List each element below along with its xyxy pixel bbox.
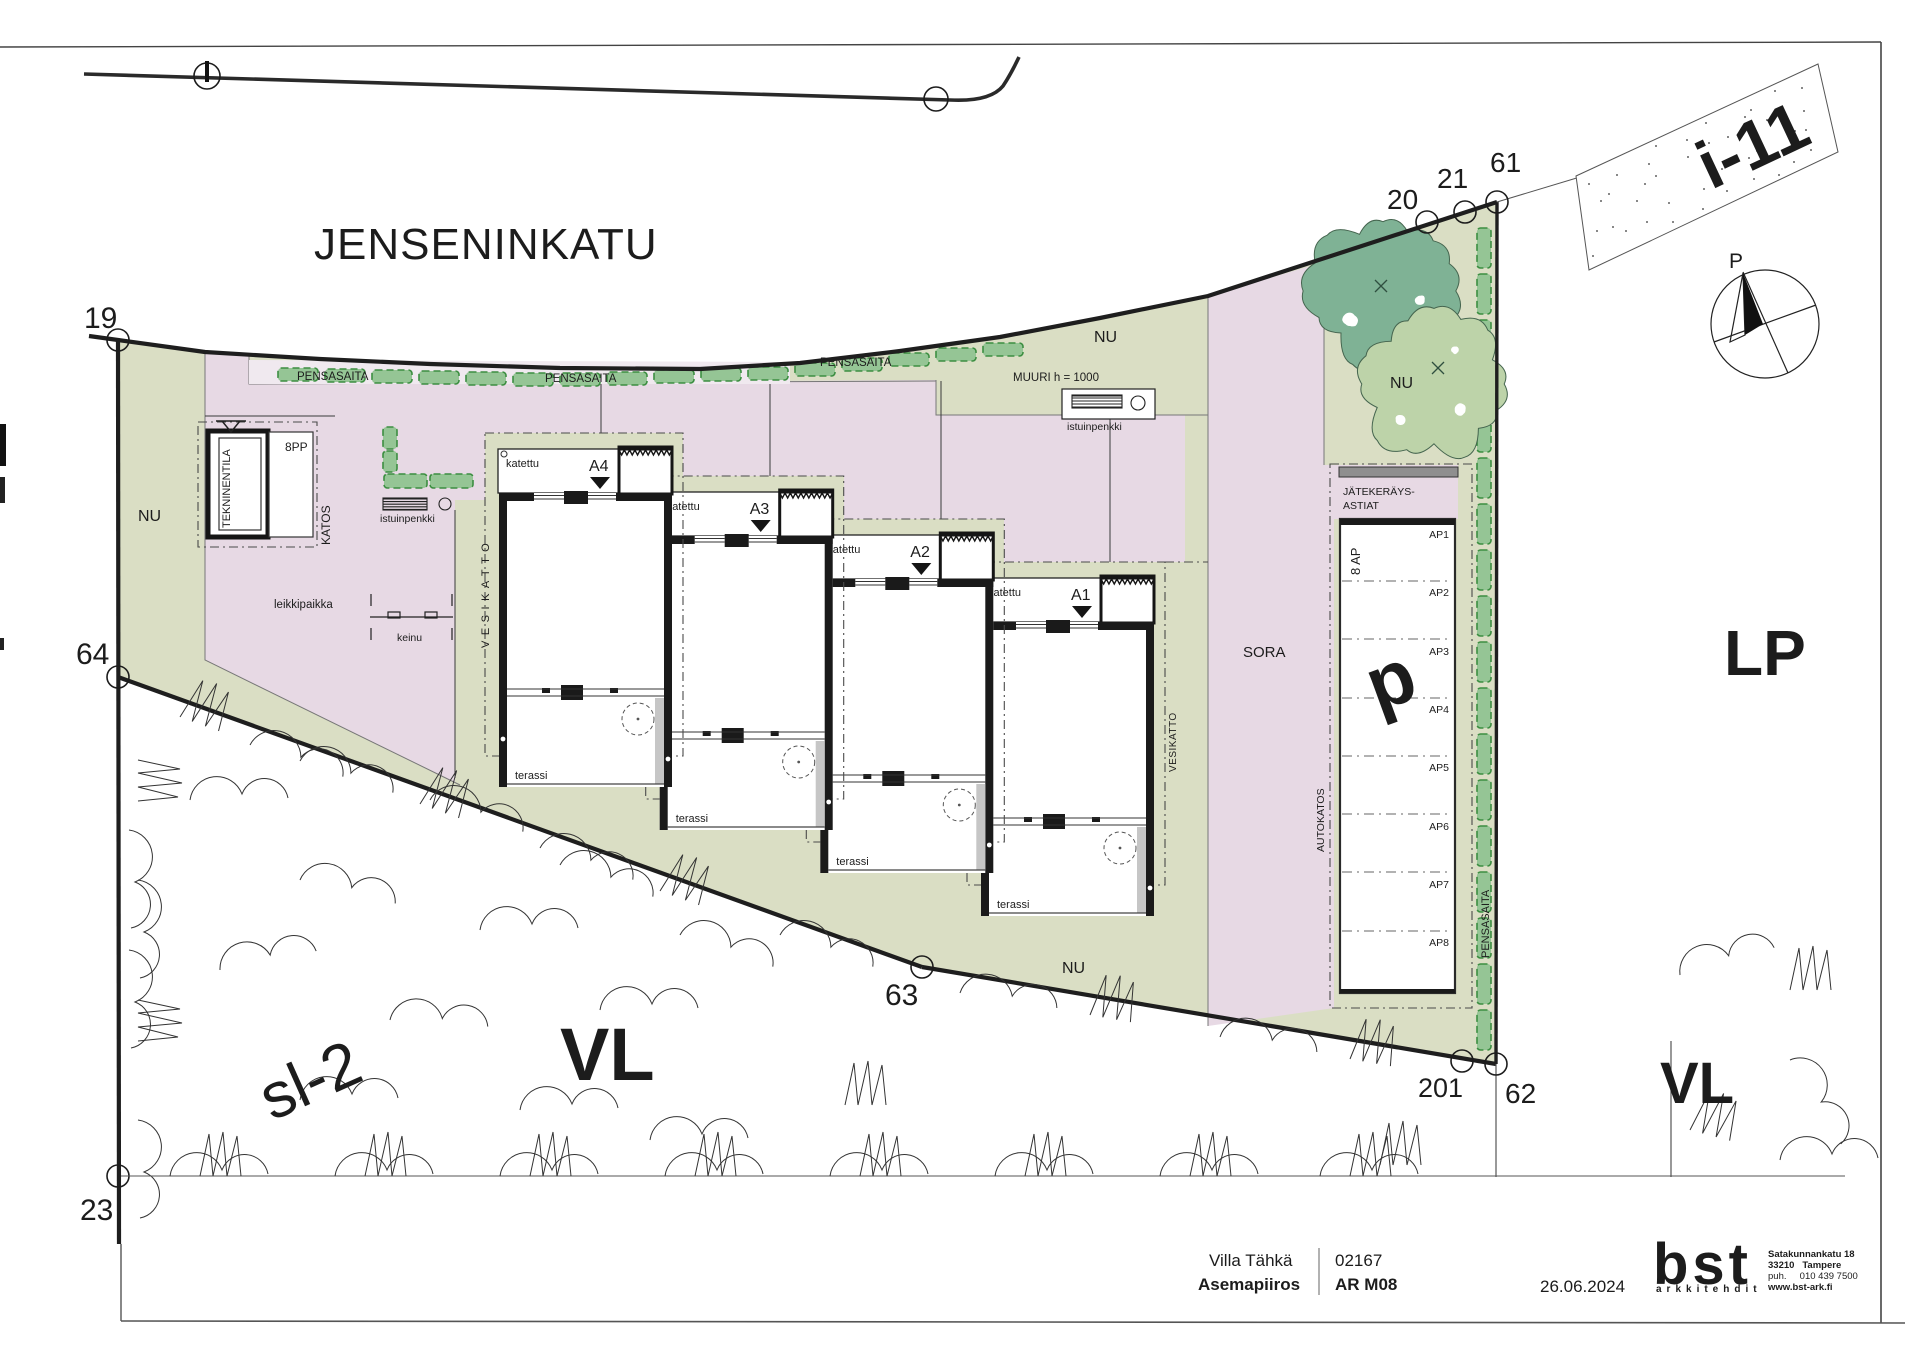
svg-text:62: 62 xyxy=(1505,1078,1536,1109)
svg-text:A1: A1 xyxy=(1071,587,1091,604)
svg-text:19: 19 xyxy=(84,302,117,335)
svg-text:Asemapiiros: Asemapiiros xyxy=(1198,1275,1300,1294)
svg-text:AP4: AP4 xyxy=(1429,704,1449,716)
svg-text:terassi: terassi xyxy=(836,856,868,868)
svg-text:AP7: AP7 xyxy=(1429,879,1449,891)
svg-text:terassi: terassi xyxy=(676,813,708,825)
svg-text:PENSASAITA: PENSASAITA xyxy=(545,373,617,385)
svg-text:AP2: AP2 xyxy=(1429,587,1449,599)
svg-text:VESIKATTO: VESIKATTO xyxy=(1168,712,1179,772)
svg-text:arkkitehdit: arkkitehdit xyxy=(1656,1284,1762,1295)
svg-text:puh. 010 439 7500: puh. 010 439 7500 xyxy=(1768,1271,1858,1282)
svg-text:istuinpenkki: istuinpenkki xyxy=(1067,421,1122,433)
svg-text:64: 64 xyxy=(76,638,109,671)
svg-text:KATOS: KATOS xyxy=(319,505,333,545)
svg-text:AP6: AP6 xyxy=(1429,821,1449,833)
svg-text:61: 61 xyxy=(1490,147,1521,178)
svg-text:A3: A3 xyxy=(750,501,770,518)
svg-text:NU: NU xyxy=(138,508,161,525)
svg-text:AP3: AP3 xyxy=(1429,646,1449,658)
svg-text:leikkipaikka: leikkipaikka xyxy=(274,599,333,611)
svg-text:JÄTEKERÄYS-: JÄTEKERÄYS- xyxy=(1343,486,1415,498)
svg-text:P: P xyxy=(1729,250,1743,273)
svg-text:terassi: terassi xyxy=(997,899,1029,911)
svg-text:NU: NU xyxy=(1062,960,1085,977)
svg-text:20: 20 xyxy=(1387,184,1418,215)
svg-text:A4: A4 xyxy=(589,458,609,475)
svg-text:AP1: AP1 xyxy=(1429,529,1449,541)
svg-text:Satakunnankatu 18: Satakunnankatu 18 xyxy=(1768,1249,1855,1260)
svg-text:NU: NU xyxy=(1094,329,1117,346)
svg-text:AP5: AP5 xyxy=(1429,762,1449,774)
svg-text:PENSASAITA: PENSASAITA xyxy=(1480,889,1492,958)
svg-text:Villa Tähkä: Villa Tähkä xyxy=(1209,1251,1293,1270)
svg-text:AUTOKATOS: AUTOKATOS xyxy=(1315,788,1327,852)
svg-text:63: 63 xyxy=(885,979,918,1012)
svg-text:MUURI h = 1000: MUURI h = 1000 xyxy=(1013,372,1099,384)
svg-text:AP8: AP8 xyxy=(1429,937,1449,949)
svg-text:PENSASAITA: PENSASAITA xyxy=(297,371,369,383)
svg-text:terassi: terassi xyxy=(515,770,547,782)
svg-text:8PP: 8PP xyxy=(285,440,308,454)
svg-text:VL: VL xyxy=(560,1013,655,1096)
svg-text:02167: 02167 xyxy=(1335,1251,1382,1270)
svg-text:katettu: katettu xyxy=(506,458,539,470)
svg-text:istuinpenkki: istuinpenkki xyxy=(380,513,435,525)
svg-text:21: 21 xyxy=(1437,163,1468,194)
svg-text:LP: LP xyxy=(1724,617,1806,689)
svg-text:26.06.2024: 26.06.2024 xyxy=(1540,1277,1625,1296)
svg-text:8 AP: 8 AP xyxy=(1348,548,1363,575)
svg-text:JENSENINKATU: JENSENINKATU xyxy=(314,220,658,269)
svg-text:A2: A2 xyxy=(910,544,930,561)
svg-text:VL: VL xyxy=(1660,1051,1734,1116)
svg-text:TEKNINENTILA: TEKNINENTILA xyxy=(221,448,233,528)
svg-text:keinu: keinu xyxy=(397,632,422,644)
svg-text:23: 23 xyxy=(80,1194,113,1227)
svg-text:NU: NU xyxy=(1390,375,1413,392)
svg-text:VESIKATTO: VESIKATTO xyxy=(480,538,492,648)
svg-text:www.bst-ark.fi: www.bst-ark.fi xyxy=(1767,1282,1833,1293)
svg-text:201: 201 xyxy=(1418,1073,1463,1103)
svg-text:33210 Tampere: 33210 Tampere xyxy=(1768,1260,1841,1271)
svg-text:AR M08: AR M08 xyxy=(1335,1275,1397,1294)
svg-text:ASTIAT: ASTIAT xyxy=(1343,500,1380,512)
svg-text:SORA: SORA xyxy=(1243,644,1286,661)
